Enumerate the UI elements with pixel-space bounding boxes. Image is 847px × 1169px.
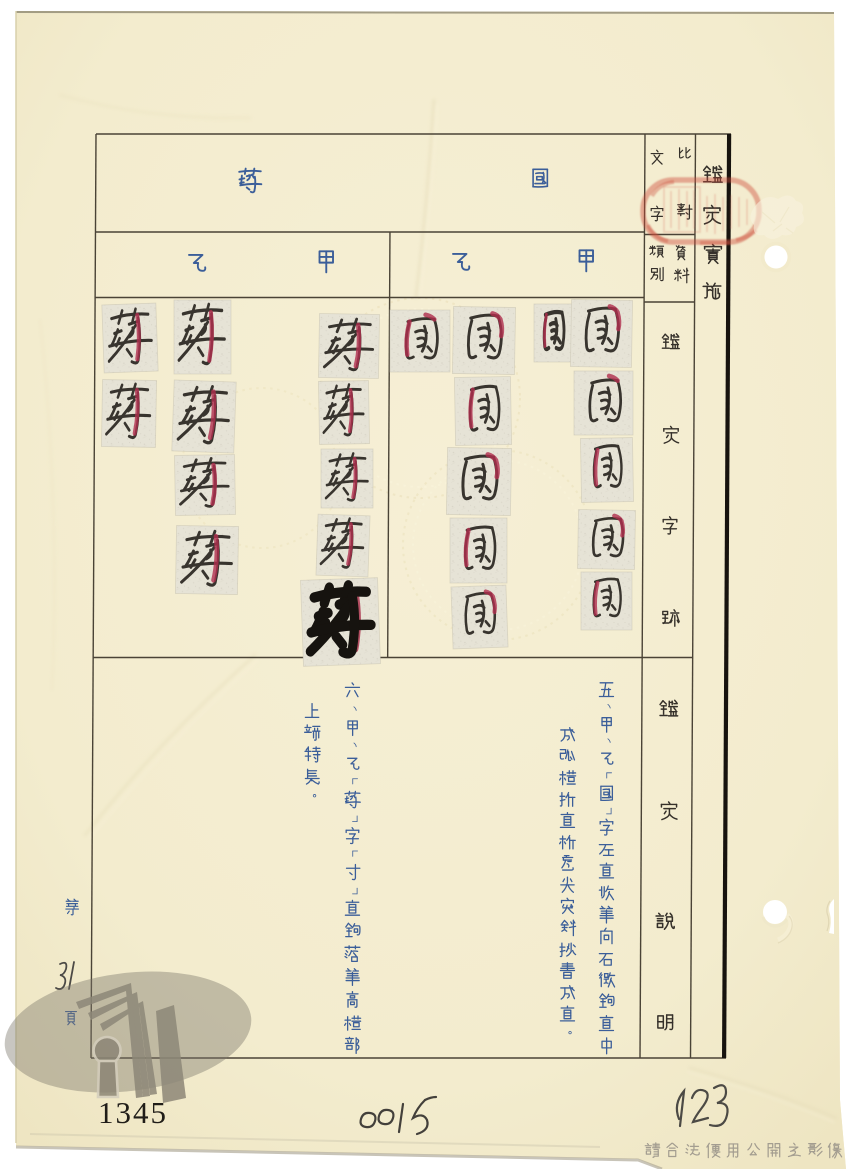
svg-text:1345: 1345 <box>98 1095 168 1130</box>
